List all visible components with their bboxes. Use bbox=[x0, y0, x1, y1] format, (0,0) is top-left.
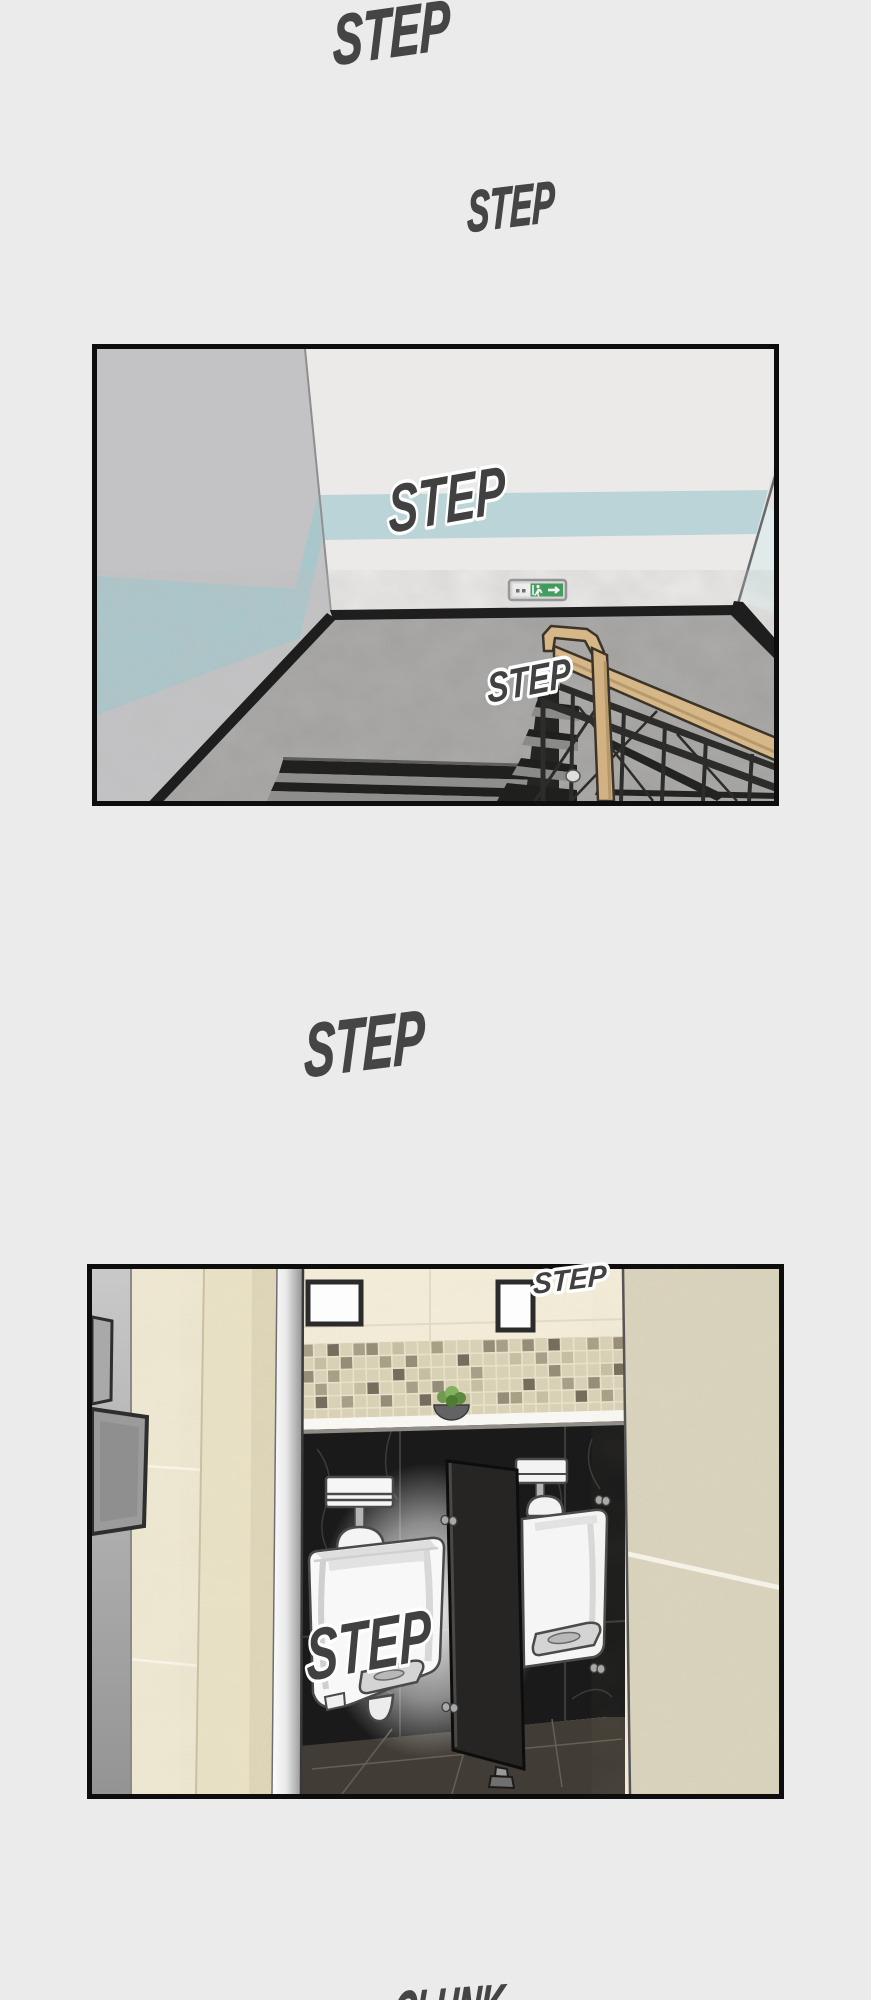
svg-text:STEP: STEP bbox=[387, 452, 507, 548]
svg-text:CLUNK: CLUNK bbox=[391, 1971, 508, 2000]
svg-text:STEP: STEP bbox=[305, 1595, 433, 1697]
svg-text:STEP: STEP bbox=[533, 1260, 608, 1301]
svg-text:STEP: STEP bbox=[304, 994, 426, 1093]
svg-text:STEP: STEP bbox=[333, 0, 450, 80]
svg-text:STEP: STEP bbox=[486, 649, 572, 712]
svg-text:STEP: STEP bbox=[467, 170, 556, 245]
